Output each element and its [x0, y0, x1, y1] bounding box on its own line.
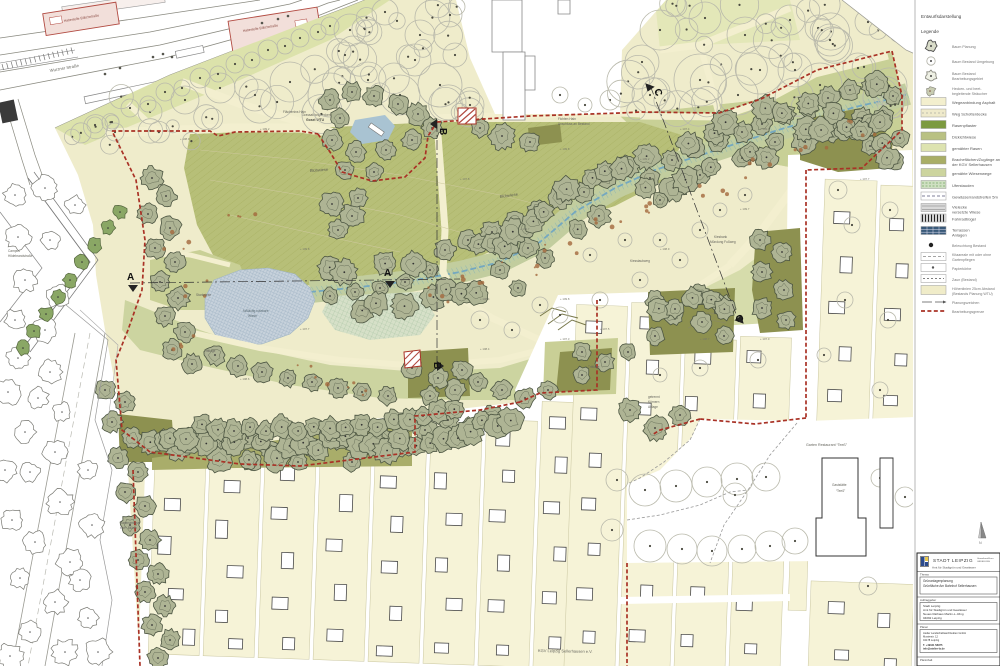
svg-text:Bearbeitungsgrenze: Bearbeitungsgrenze	[952, 310, 984, 314]
svg-text:Fichten Hain: Fichten Hain	[558, 117, 576, 121]
svg-text:Planer: Planer	[920, 625, 928, 629]
svg-text:getrennt: getrennt	[648, 395, 660, 399]
svg-text:Planungszeichen: Planungszeichen	[952, 301, 979, 305]
svg-text:Mündung Fußweg: Mündung Fußweg	[710, 240, 736, 244]
svg-text:Weg Schotterdecke: Weg Schotterdecke	[952, 112, 988, 117]
svg-text:+ 107.5: + 107.5	[600, 327, 610, 331]
svg-text:Flächenins Hain: Flächenins Hain	[283, 110, 306, 114]
svg-text:Auftraggeber: Auftraggeber	[920, 598, 936, 602]
svg-text:Baum Planung: Baum Planung	[952, 45, 976, 49]
svg-text:+ 109.4: + 109.4	[760, 127, 770, 131]
svg-text:Grünfläche Am Bahnhof Sellerh: Grünfläche Am Bahnhof Sellerhausen	[923, 584, 977, 588]
svg-text:A: A	[384, 268, 391, 279]
svg-text:Garten Restaurant “Teeß”: Garten Restaurant “Teeß”	[806, 443, 848, 447]
svg-text:Kitaareale mit oder ohne: Kitaareale mit oder ohne	[952, 253, 991, 257]
svg-text:STADT LEIPZIG: STADT LEIPZIG	[933, 558, 973, 563]
svg-text:gemähte Wiesenwege: gemähte Wiesenwege	[952, 171, 992, 176]
svg-text:Höhenlinien 25cm Abstand: Höhenlinien 25cm Abstand	[952, 287, 995, 291]
svg-text:04178 Leipzig: 04178 Leipzig	[923, 638, 940, 642]
svg-text:+ 109.2: + 109.2	[640, 157, 650, 161]
svg-text:+ 107.8: + 107.8	[460, 177, 470, 181]
svg-text:+ 108.6: + 108.6	[240, 377, 250, 381]
svg-text:A: A	[127, 272, 134, 283]
svg-text:Dickichtwiese: Dickichtwiese	[952, 135, 977, 140]
svg-text:Anschluss an Bestand: Anschluss an Bestand	[558, 122, 590, 126]
svg-text:Ablage: Ablage	[648, 405, 658, 409]
svg-text:+ 109.3: + 109.3	[360, 307, 370, 311]
svg-text:GRUELDING: GRUELDING	[977, 561, 990, 563]
svg-text:Rasenpflaster: Rasenpflaster	[952, 123, 977, 128]
svg-text:Rasenameise: Rasenameise	[120, 521, 140, 525]
svg-text:+ 108.4: + 108.4	[480, 347, 490, 351]
svg-text:+ 109.7: + 109.7	[740, 207, 750, 211]
svg-text:begleitende Sträucher: begleitende Sträucher	[952, 92, 988, 96]
svg-text:+ 108.4: + 108.4	[480, 297, 490, 301]
svg-text:Baum Bestand: Baum Bestand	[952, 72, 976, 76]
svg-text:+ 109.8: + 109.8	[560, 147, 570, 151]
svg-text:Planinhalt: Planinhalt	[920, 658, 933, 662]
svg-text:+ 109.8: + 109.8	[560, 297, 570, 301]
svg-text:KGV Leipzig Sellerhausen e.V.: KGV Leipzig Sellerhausen e.V.	[538, 648, 593, 654]
svg-text:T. +49341 58975: T. +49341 58975	[923, 643, 943, 647]
svg-text:Körnern: Körnern	[648, 400, 660, 404]
svg-text:Musterstr. 12: Musterstr. 12	[923, 635, 939, 639]
svg-text:Umweltamt/Grau: Umweltamt/Grau	[977, 557, 994, 560]
svg-text:Starkniese: Starkniese	[196, 293, 211, 297]
svg-text:Anlagen: Anlagen	[952, 233, 967, 238]
svg-text:Campus: Campus	[8, 249, 20, 253]
svg-text:+ 107.0: + 107.0	[760, 337, 770, 341]
svg-text:+ 108.7: + 108.7	[700, 337, 710, 341]
svg-text:+ 109.8: + 109.8	[300, 247, 310, 251]
svg-text:Baum Bestand Umgebung: Baum Bestand Umgebung	[952, 60, 994, 64]
svg-text:Gartenpflegen: Gartenpflegen	[952, 258, 975, 262]
svg-text:gemähter Rasen: gemähter Rasen	[952, 146, 982, 151]
svg-text:Legende: Legende	[921, 29, 939, 34]
svg-text:N: N	[979, 541, 982, 545]
svg-text:Atelier Landschaftsarchitekten: Atelier Landschaftsarchitekten GmbH	[923, 631, 966, 635]
svg-text:+ 107.4: + 107.4	[680, 127, 690, 131]
svg-text:B: B	[437, 128, 448, 135]
svg-text:+ 107.1: + 107.1	[380, 257, 390, 261]
svg-text:Hof+ Blüten: Hof+ Blüten	[120, 526, 137, 530]
svg-text:Trittlage: Trittlage	[204, 349, 216, 353]
svg-text:“Teeß”: “Teeß”	[836, 489, 845, 493]
svg-text:04092 Leipzig: 04092 Leipzig	[923, 616, 942, 620]
svg-text:Wegeanbindung Asphalt: Wegeanbindung Asphalt	[952, 100, 996, 105]
svg-text:+ 109.4: + 109.4	[420, 137, 430, 141]
svg-text:Papierkörbe: Papierkörbe	[952, 267, 971, 271]
svg-text:Kiesbank: Kiesbank	[714, 235, 728, 239]
svg-text:+ 107.7: + 107.7	[300, 327, 310, 331]
svg-text:Grünanlagenplanung: Grünanlagenplanung	[923, 579, 953, 583]
svg-text:versetzte Wiese: versetzte Wiese	[952, 210, 981, 215]
svg-text:Gewässerrandstreifen 5m: Gewässerrandstreifen 5m	[952, 195, 998, 200]
svg-text:Uferstauden: Uferstauden	[952, 183, 974, 188]
svg-text:B: B	[431, 362, 442, 369]
svg-text:der KGV Sellerhausen: der KGV Sellerhausen	[952, 162, 992, 167]
svg-text:+ 107.3: + 107.3	[560, 337, 570, 341]
svg-text:+ 109.7: + 109.7	[520, 227, 530, 231]
svg-text:Beleuchtung Bestand: Beleuchtung Bestand	[952, 244, 986, 248]
svg-text:Thema: Thema	[920, 573, 929, 577]
svg-text:fußläufig nutzbare: fußläufig nutzbare	[243, 309, 269, 313]
svg-text:(Bestands Planung WTU): (Bestands Planung WTU)	[952, 292, 993, 296]
svg-text:Entwurfsdarstellung: Entwurfsdarstellung	[921, 14, 962, 19]
svg-text:Trittlage: Trittlage	[588, 365, 600, 369]
svg-text:+ 109.2: + 109.2	[260, 127, 270, 131]
svg-text:Fahrradbügel: Fahrradbügel	[952, 217, 976, 222]
svg-text:Gosel WTU: Gosel WTU	[306, 118, 325, 122]
svg-text:Hildebrandstraße: Hildebrandstraße	[8, 254, 33, 258]
svg-text:Kiesstaubweg: Kiesstaubweg	[630, 259, 650, 263]
svg-text:+ 107.7: + 107.7	[860, 177, 870, 181]
svg-text:Bearbeitungsgebiet: Bearbeitungsgebiet	[952, 77, 983, 81]
svg-text:Gaststätte: Gaststätte	[832, 483, 847, 487]
svg-text:info@atelier-la.de: info@atelier-la.de	[923, 647, 945, 651]
svg-text:Hecken- und beet-: Hecken- und beet-	[952, 87, 982, 91]
svg-text:Zaun (Bestand): Zaun (Bestand)	[952, 278, 977, 282]
svg-text:Wiese: Wiese	[248, 314, 257, 318]
svg-text:+ 108.9: + 108.9	[660, 247, 670, 251]
svg-text:+ 108.9: + 108.9	[180, 137, 190, 141]
svg-text:Amt für Stadtgrün und Gewässer: Amt für Stadtgrün und Gewässer	[932, 566, 976, 570]
